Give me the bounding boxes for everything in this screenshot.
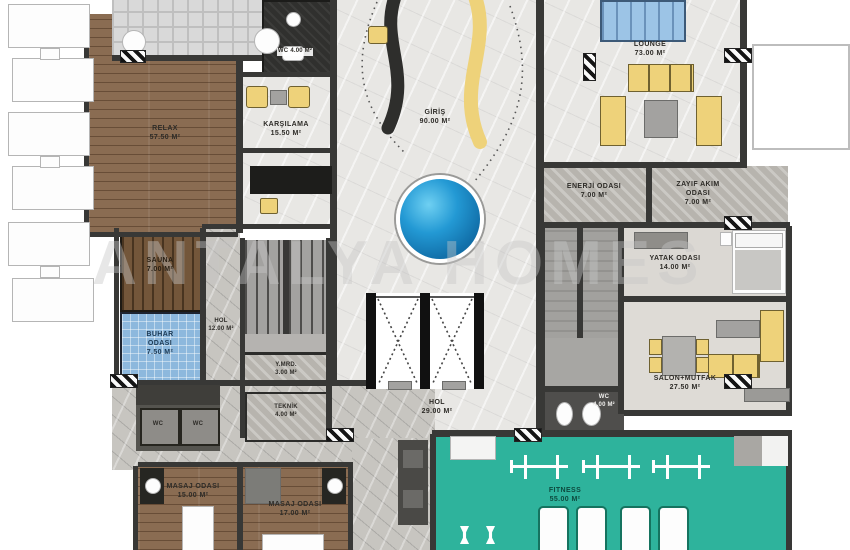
sofa — [600, 96, 626, 146]
room-label-relax: RELAX57.50 M² — [115, 124, 215, 142]
corridor-left-floor — [202, 228, 240, 388]
wall — [202, 224, 332, 229]
wall — [740, 0, 747, 168]
wc-stall: WC — [140, 408, 180, 446]
room-label-ymrd: Y.MRD.3.00 M² — [245, 362, 327, 378]
bench-press-icon — [652, 452, 710, 482]
stool — [260, 198, 278, 214]
toilet-icon — [556, 402, 573, 426]
sink-icon — [286, 12, 301, 27]
fitness-notch-white — [762, 436, 788, 466]
door-hatch-icon — [120, 50, 146, 63]
room-label-masaj-1: MASAJ ODASI15.00 M² — [160, 482, 226, 500]
elevator-shaft-icon — [430, 293, 474, 389]
fitness-notch — [734, 436, 788, 466]
shower-pan — [245, 468, 281, 504]
side-table — [40, 156, 60, 168]
armchair — [246, 86, 268, 108]
treadmill-icon — [538, 506, 569, 550]
room-label-buhar: BUHAR ODASI7.50 M² — [137, 330, 183, 357]
floor-plan: WC WC — [0, 0, 850, 550]
room-label-wc-top: WC4.00 M² — [270, 48, 320, 56]
bench-press-icon — [582, 452, 640, 482]
stairs-left-landing — [245, 334, 327, 352]
room-label-fitness: FITNESS55.00 M² — [515, 486, 615, 504]
stool — [145, 478, 161, 494]
door-hatch-icon — [724, 216, 752, 230]
door-hatch-icon — [514, 428, 542, 442]
room-label-giris: GİRİŞ90.00 M² — [380, 108, 490, 126]
wall — [200, 228, 206, 386]
wall — [133, 466, 138, 550]
wall — [430, 434, 436, 550]
dining-table — [662, 336, 696, 376]
wall — [544, 162, 744, 168]
wall — [544, 386, 624, 392]
lounger — [8, 222, 90, 266]
wardrobe — [634, 232, 688, 249]
jacuzzi-pool — [396, 175, 484, 263]
treadmill-icon — [658, 506, 689, 550]
bench-press-icon — [510, 452, 568, 482]
coffee-table — [644, 100, 678, 138]
elevator-wall — [474, 293, 484, 389]
treadmill-icon — [576, 506, 607, 550]
balcony-outline — [752, 44, 850, 150]
wall — [620, 296, 790, 302]
utility-cabinet — [398, 440, 428, 525]
blanket — [735, 250, 781, 290]
room-label-salon-mutfak: SALON+MUTFAK27.50 M² — [630, 374, 740, 392]
lounge-bar-table — [600, 0, 686, 42]
chair — [649, 339, 662, 355]
cabinet-box — [403, 490, 423, 508]
wc-stall-label: WC — [182, 421, 214, 429]
wall — [624, 410, 790, 416]
lounger — [12, 166, 94, 210]
room-label-wc-alt: WC4.00 M² — [584, 394, 624, 410]
fitness-door — [450, 436, 496, 460]
wall — [88, 232, 238, 237]
massage-table — [262, 534, 324, 550]
room-label-masaj-2: MASAJ ODASI17.00 M² — [262, 500, 328, 518]
entrance-stool — [368, 26, 388, 44]
console-cabinet — [250, 166, 332, 194]
lounger — [12, 278, 94, 322]
pillow — [735, 233, 783, 248]
room-label-lounge: LOUNGE73.00 M² — [595, 40, 705, 58]
armchair — [760, 310, 784, 362]
balcony-step — [744, 388, 790, 402]
tv-unit — [716, 320, 760, 338]
armchair — [288, 86, 310, 108]
room-label-teknik: TEKNİK4.00 M² — [245, 404, 327, 420]
counter — [136, 385, 220, 405]
elevator-shaft-icon — [376, 293, 420, 389]
stairs-left-divider — [283, 240, 289, 334]
room-label-yatak: YATAK ODASI14.00 M² — [630, 254, 720, 272]
wall — [544, 222, 790, 228]
stair-divider — [577, 226, 583, 338]
room-label-hol-spa: HOL12.00 M² — [196, 318, 246, 334]
wall — [236, 58, 243, 233]
room-label-sauna: SAUNA7.00 M² — [135, 256, 185, 274]
corner-unit — [322, 468, 346, 504]
nightstand — [720, 232, 732, 246]
elevator-wall — [366, 293, 376, 389]
wall — [240, 148, 332, 153]
room-label-zayif-akim: ZAYIF AKIM ODASI7.00 M² — [666, 180, 730, 207]
side-table — [40, 48, 60, 60]
wall — [348, 466, 353, 550]
wall — [138, 462, 353, 467]
bed — [732, 230, 786, 294]
cabinet-box — [403, 450, 423, 468]
elevator-block — [366, 293, 484, 389]
wall — [237, 466, 243, 550]
massage-table — [182, 506, 214, 550]
wc-stall-block: WC WC — [136, 385, 220, 451]
chair — [649, 357, 662, 373]
room-label-karsilama: KARŞILAMA15.50 M² — [240, 120, 332, 138]
wc-stall: WC — [180, 408, 220, 446]
door-hatch-icon — [326, 428, 354, 442]
sofa — [628, 64, 694, 92]
elevator-wall — [420, 293, 430, 389]
wall — [240, 72, 332, 77]
wc-stall-label: WC — [142, 421, 174, 429]
treadmill-icon — [620, 506, 651, 550]
door-hatch-icon — [724, 48, 752, 63]
elevator-sill — [442, 381, 466, 390]
chair — [696, 339, 709, 355]
door-hatch-icon — [110, 374, 138, 388]
side-table — [270, 90, 287, 105]
side-table — [40, 266, 60, 278]
wall — [646, 166, 652, 226]
room-label-enerji: ENERJİ ODASI7.00 M² — [564, 182, 624, 200]
lounger — [12, 58, 94, 102]
lounger — [8, 4, 90, 48]
wall — [114, 228, 119, 388]
room-label-hol-asansor: HOL29.00 M² — [387, 398, 487, 416]
stool — [327, 478, 343, 494]
elevator-sill — [388, 381, 412, 390]
stairwell-right-landing — [544, 338, 624, 392]
lounger — [8, 112, 90, 156]
sofa — [696, 96, 722, 146]
